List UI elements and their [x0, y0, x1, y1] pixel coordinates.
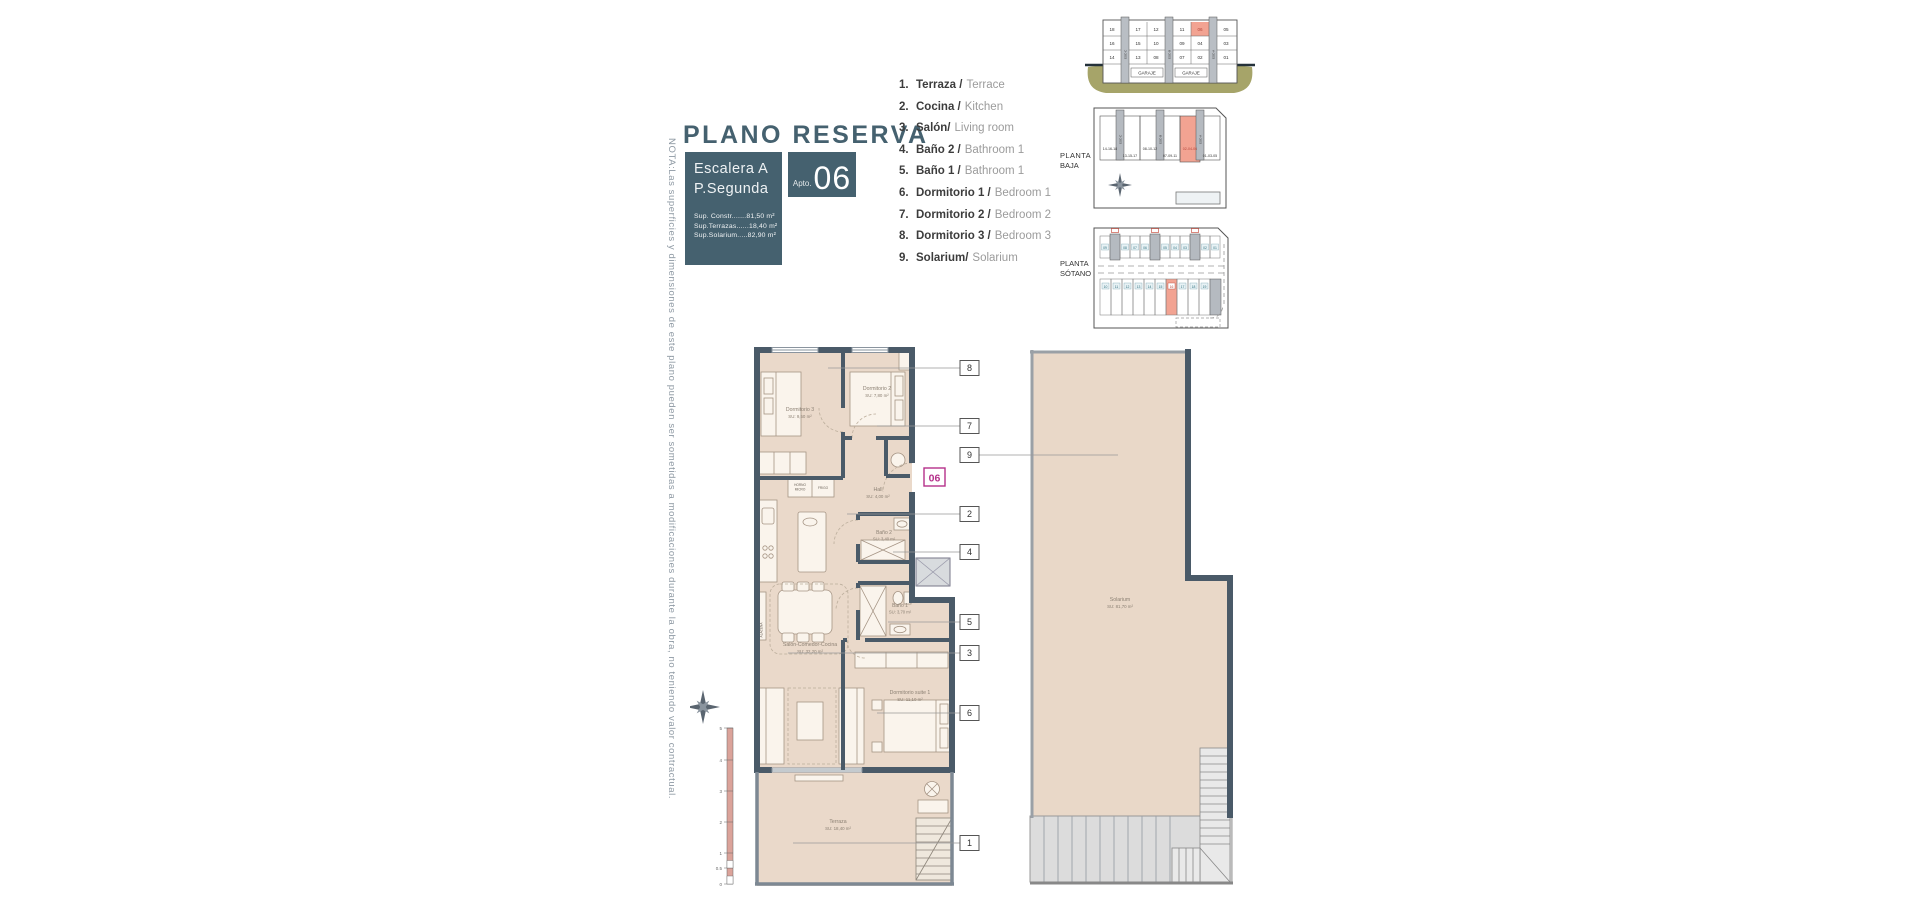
- hall-name: Hall: [874, 487, 883, 493]
- svg-text:09: 09: [1179, 41, 1185, 46]
- dorm3-area: SU: 9,50 m²: [788, 414, 812, 419]
- garaje-label: GARAJE: [1182, 71, 1200, 76]
- terraza-name: Terraza: [829, 819, 846, 825]
- svg-text:05: 05: [1163, 246, 1167, 250]
- svg-text:13: 13: [1137, 285, 1141, 289]
- page-title: PLANO RESERVA: [683, 121, 929, 150]
- svg-text:4: 4: [719, 758, 722, 763]
- legend-item: 8.Dormitorio 3 /Bedroom 3: [899, 230, 1051, 252]
- svg-text:04: 04: [1197, 41, 1203, 46]
- compass-icon: [690, 690, 720, 724]
- suite-name: Dormitorio suite 1: [890, 690, 931, 696]
- esc-a-label: ESC-A: [1212, 50, 1216, 59]
- svg-text:11: 11: [1180, 27, 1185, 32]
- svg-text:17: 17: [1181, 285, 1185, 289]
- svg-text:08-10-12: 08-10-12: [1143, 147, 1157, 151]
- svg-text:06: 06: [1197, 27, 1203, 32]
- svg-text:3: 3: [719, 789, 722, 794]
- callout-6: 6: [967, 708, 972, 718]
- svg-text:02-04-06: 02-04-06: [1183, 147, 1197, 151]
- stair-floor-box: Escalera A P.Segunda Sup. Constr.......8…: [685, 152, 782, 265]
- micro-label: MICRO: [795, 488, 806, 492]
- building-section-diagram: ESC-C ESC-B ESC-A 18 17 12 11 06 05 16 1…: [1085, 12, 1255, 100]
- planta-baja-label1: PLANTA: [1060, 151, 1091, 160]
- svg-text:12: 12: [1126, 285, 1130, 289]
- callout-4: 4: [967, 547, 972, 557]
- callout-7: 7: [967, 421, 972, 431]
- apartment-plan: Dormitorio 3 SU: 9,50 m² Dormitorio 2 SU…: [754, 347, 955, 886]
- shaft-bar: [1210, 279, 1221, 315]
- scale-labels: 5 4 3 2 1 0.5 0: [716, 726, 723, 887]
- callout-3: 3: [967, 648, 972, 658]
- apto-label: Apto.: [793, 179, 812, 188]
- svg-text:06: 06: [1143, 246, 1147, 250]
- nota-disclaimer: NOTA:Las superficies y dimensiones de es…: [666, 138, 677, 818]
- legend-item: 5.Baño 1 /Bathroom 1: [899, 165, 1051, 187]
- bano2-area: SU: 3,40 m²: [873, 537, 896, 542]
- esc-a-label: ESC-A: [1199, 135, 1203, 144]
- bano1-name: Baño 1: [892, 603, 908, 609]
- apartment-tag-number: 06: [929, 473, 941, 485]
- svg-text:14: 14: [1109, 55, 1115, 60]
- planta-sotano-label1: PLANTA: [1060, 259, 1089, 268]
- terraza-area: SU: 18,40 m²: [825, 826, 851, 831]
- legend-item: 2.Cocina /Kitchen: [899, 101, 1051, 123]
- svg-text:17: 17: [1135, 27, 1141, 32]
- svg-text:03: 03: [1223, 41, 1229, 46]
- dorm2-name: Dormitorio 2: [863, 386, 891, 392]
- dorm3-name: Dormitorio 3: [786, 407, 814, 413]
- svg-text:16: 16: [1109, 41, 1115, 46]
- callout-numbers: 8 7 9 2 4 5 3 6 1: [967, 363, 972, 848]
- svg-text:09: 09: [1103, 246, 1107, 250]
- svg-text:0: 0: [719, 882, 722, 887]
- svg-text:05: 05: [1223, 27, 1229, 32]
- planta-sotano-diagram: PLANTA SÓTANO 0: [1058, 222, 1258, 334]
- svg-text:18: 18: [1192, 285, 1196, 289]
- callout-9: 9: [967, 450, 972, 460]
- bano2-name: Baño 2: [876, 530, 892, 536]
- callout-8: 8: [967, 363, 972, 373]
- scale-bar: 5 4 3 2 1 0.5 0: [716, 726, 733, 887]
- dorm2-area: SU: 7,80 m²: [865, 393, 889, 398]
- callout-1: 1: [967, 838, 972, 848]
- planta-sotano-label2: SÓTANO: [1060, 269, 1091, 278]
- svg-text:10: 10: [1153, 41, 1159, 46]
- suite-area: SU: 11,10 m²: [897, 697, 923, 702]
- alacena-label: ALACENA: [760, 622, 764, 638]
- sup-constr: Sup. Constr.......81,50 m²: [694, 212, 782, 222]
- landing-shaft: [916, 558, 950, 586]
- garaje-label: GARAJE: [1138, 71, 1156, 76]
- svg-text:5: 5: [719, 726, 722, 731]
- horno-label: HORNO: [794, 483, 806, 487]
- terrace-stairs: [916, 818, 952, 880]
- planta-baja-diagram: PLANTA BAJA ESC-C ESC-B ESC-A 14-16-18 1…: [1058, 100, 1258, 218]
- svg-text:07-09-11: 07-09-11: [1163, 154, 1177, 158]
- solarium-area: SU: 81,70 m²: [1107, 604, 1133, 609]
- svg-text:13: 13: [1135, 55, 1141, 60]
- esc-b-label: ESC-B: [1159, 135, 1163, 144]
- salon-name: Salón-Comedor-Cocina: [783, 642, 837, 648]
- svg-text:01: 01: [1213, 246, 1217, 250]
- svg-text:2: 2: [719, 820, 722, 825]
- solarium-name: Solarium: [1110, 597, 1130, 603]
- svg-text:03: 03: [1183, 246, 1187, 250]
- planta-baja-label2: BAJA: [1060, 161, 1079, 170]
- esc-c-label: ESC-C: [1124, 49, 1128, 59]
- svg-text:13-15-17: 13-15-17: [1123, 154, 1137, 158]
- planta-label: P.Segunda: [694, 179, 782, 199]
- svg-text:04: 04: [1173, 246, 1177, 250]
- svg-text:16: 16: [1170, 285, 1174, 289]
- svg-text:15: 15: [1135, 41, 1141, 46]
- legend-item: 4.Baño 2 /Bathroom 1: [899, 144, 1051, 166]
- svg-text:0.5: 0.5: [716, 866, 723, 871]
- svg-text:01: 01: [1223, 55, 1229, 60]
- apartment-number-box: Apto. 06: [788, 152, 856, 197]
- callout-2: 2: [967, 509, 972, 519]
- esc-c-label: ESC-C: [1119, 134, 1123, 144]
- callout-5: 5: [967, 617, 972, 627]
- legend-item: 1.Terraza /Terrace: [899, 79, 1051, 101]
- hall-area: SU: 4,00 m²: [866, 494, 890, 499]
- legend-item: 9.Solarium/Solarium: [899, 252, 1051, 274]
- svg-text:1: 1: [719, 851, 722, 856]
- pool-outline: [1176, 192, 1220, 204]
- legend-item: 6.Dormitorio 1 /Bedroom 1: [899, 187, 1051, 209]
- frigo-label: FRIGO: [818, 486, 829, 490]
- svg-text:14: 14: [1148, 285, 1152, 289]
- escalera-label: Escalera A: [694, 159, 782, 179]
- svg-text:10: 10: [1104, 285, 1108, 289]
- apto-number: 06: [814, 163, 852, 193]
- solarium-plan: Solarium SU: 81,70 m²: [1030, 349, 1233, 883]
- callout-boxes: [960, 361, 979, 851]
- svg-text:15: 15: [1159, 285, 1163, 289]
- plano-reserva-sheet: NOTA:Las superficies y dimensiones de es…: [0, 0, 1920, 920]
- esc-b-label: ESC-B: [1168, 50, 1172, 59]
- svg-text:11: 11: [1115, 285, 1119, 289]
- bano1-area: SU: 3,70 m²: [889, 610, 912, 615]
- apartment-tag: 06: [924, 468, 945, 486]
- svg-text:07: 07: [1179, 55, 1185, 60]
- legend-item: 3.Salón/Living room: [899, 122, 1051, 144]
- svg-text:19: 19: [1203, 285, 1207, 289]
- sup-terrazas: Sup.Terrazas......18,40 m²: [694, 222, 782, 232]
- floor-plans: Dormitorio 3 SU: 9,50 m² Dormitorio 2 SU…: [690, 335, 1270, 910]
- svg-text:07: 07: [1133, 246, 1137, 250]
- svg-text:18: 18: [1109, 27, 1115, 32]
- solarium-floor: [1032, 352, 1230, 816]
- svg-text:02: 02: [1203, 246, 1207, 250]
- sup-solarium: Sup.Solarium.....82,90 m²: [694, 231, 782, 241]
- svg-text:02: 02: [1197, 55, 1203, 60]
- svg-text:08: 08: [1153, 55, 1159, 60]
- room-legend: 1.Terraza /Terrace 2.Cocina /Kitchen 3.S…: [899, 79, 1051, 273]
- svg-text:14-16-18: 14-16-18: [1103, 147, 1117, 151]
- legend-item: 7.Dormitorio 2 /Bedroom 2: [899, 209, 1051, 231]
- svg-text:08: 08: [1123, 246, 1127, 250]
- svg-text:01-03-05: 01-03-05: [1203, 154, 1217, 158]
- svg-text:12: 12: [1153, 27, 1159, 32]
